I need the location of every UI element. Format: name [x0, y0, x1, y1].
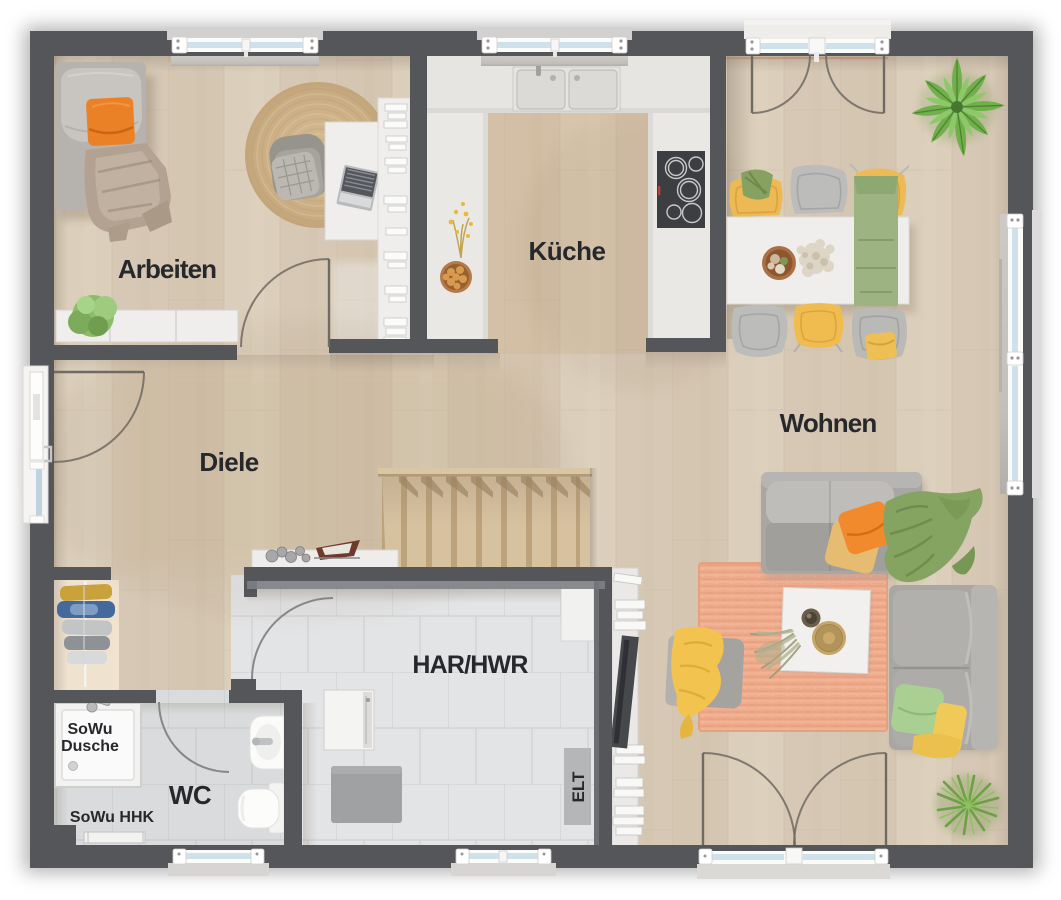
svg-text:WC: WC	[169, 780, 212, 810]
svg-text:Dusche: Dusche	[61, 738, 119, 755]
svg-text:Wohnen: Wohnen	[780, 408, 877, 438]
svg-text:Diele: Diele	[199, 447, 258, 477]
svg-text:Küche: Küche	[529, 236, 606, 266]
svg-text:ELT: ELT	[569, 771, 588, 802]
svg-text:SoWu: SoWu	[67, 721, 112, 738]
svg-text:HAR/HWR: HAR/HWR	[412, 651, 528, 679]
svg-text:Arbeiten: Arbeiten	[118, 254, 216, 284]
svg-text:SoWu HHK: SoWu HHK	[70, 809, 155, 826]
